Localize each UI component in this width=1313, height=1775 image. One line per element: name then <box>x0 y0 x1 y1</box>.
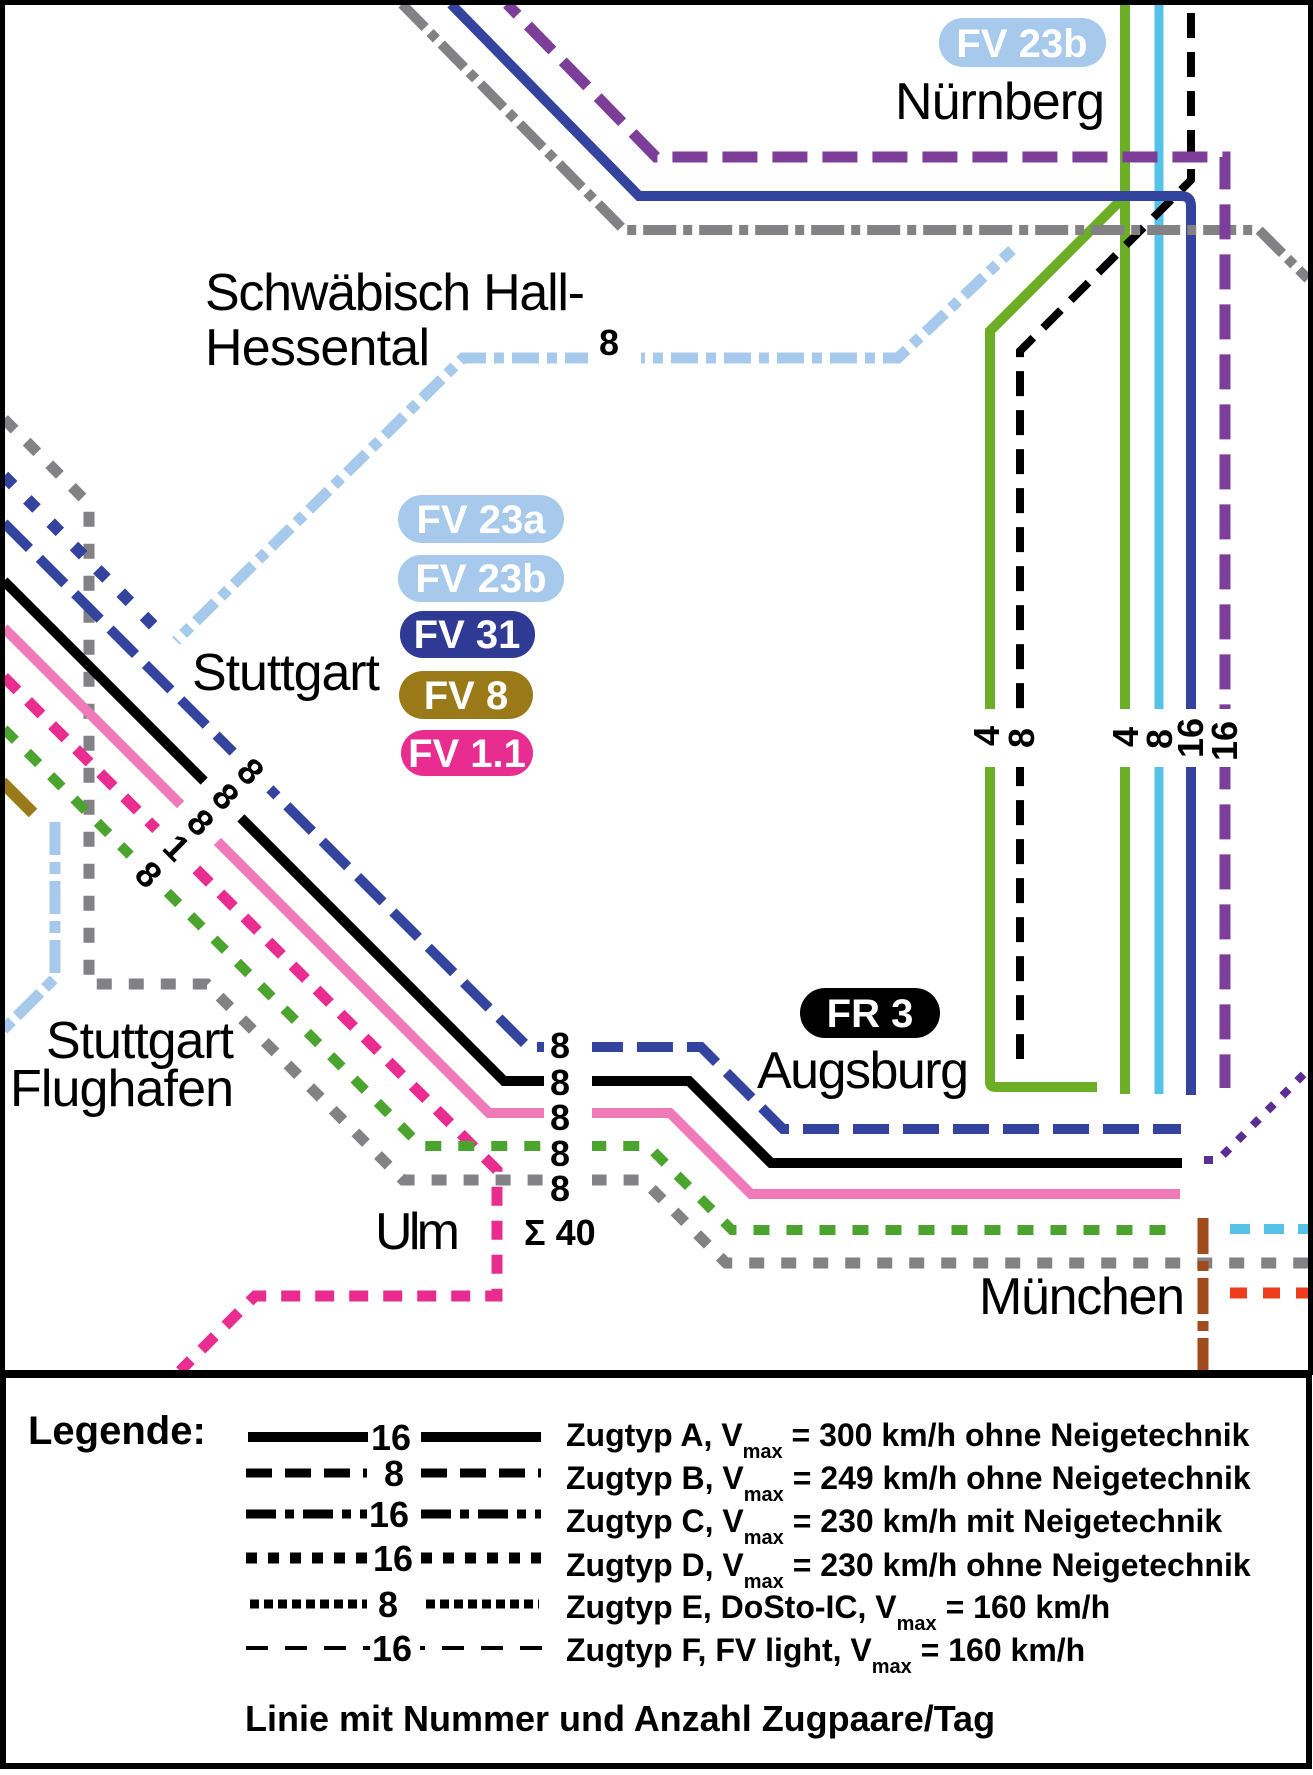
svg-text:Hessental: Hessental <box>205 319 430 377</box>
svg-text:8: 8 <box>378 1584 398 1625</box>
svg-text:Σ 40: Σ 40 <box>524 1212 596 1253</box>
svg-text:8: 8 <box>550 1168 570 1209</box>
svg-text:Flughafen: Flughafen <box>10 1060 234 1118</box>
svg-text:Stuttgart: Stuttgart <box>192 644 381 702</box>
svg-text:FV 23b: FV 23b <box>415 557 546 601</box>
svg-text:Linie mit Nummer und Anzahl Zu: Linie mit Nummer und Anzahl Zugpaare/Tag <box>245 1698 995 1739</box>
svg-text:8: 8 <box>550 1097 570 1138</box>
svg-text:8: 8 <box>550 1025 570 1066</box>
svg-text:München: München <box>979 1268 1185 1326</box>
svg-text:8: 8 <box>1001 728 1042 748</box>
svg-text:16: 16 <box>1204 721 1245 761</box>
svg-text:FV 23b: FV 23b <box>956 22 1087 66</box>
svg-text:FV 31: FV 31 <box>414 613 521 657</box>
svg-text:Augsburg: Augsburg <box>757 1042 969 1100</box>
svg-text:FR 3: FR 3 <box>827 992 914 1036</box>
svg-text:Legende:: Legende: <box>28 1409 206 1453</box>
svg-text:8: 8 <box>599 322 619 363</box>
svg-text:FV 23a: FV 23a <box>417 498 547 542</box>
svg-text:Schwäbisch Hall-: Schwäbisch Hall- <box>205 264 585 322</box>
svg-text:FV 1.1: FV 1.1 <box>408 732 526 776</box>
svg-text:Ulm: Ulm <box>375 1203 460 1261</box>
svg-text:16: 16 <box>373 1538 413 1579</box>
svg-text:FV 8: FV 8 <box>424 674 508 718</box>
svg-text:16: 16 <box>371 1417 411 1458</box>
svg-text:16: 16 <box>372 1628 412 1669</box>
svg-text:Nürnberg: Nürnberg <box>895 73 1105 131</box>
svg-text:8: 8 <box>384 1453 404 1494</box>
svg-text:16: 16 <box>369 1494 409 1535</box>
